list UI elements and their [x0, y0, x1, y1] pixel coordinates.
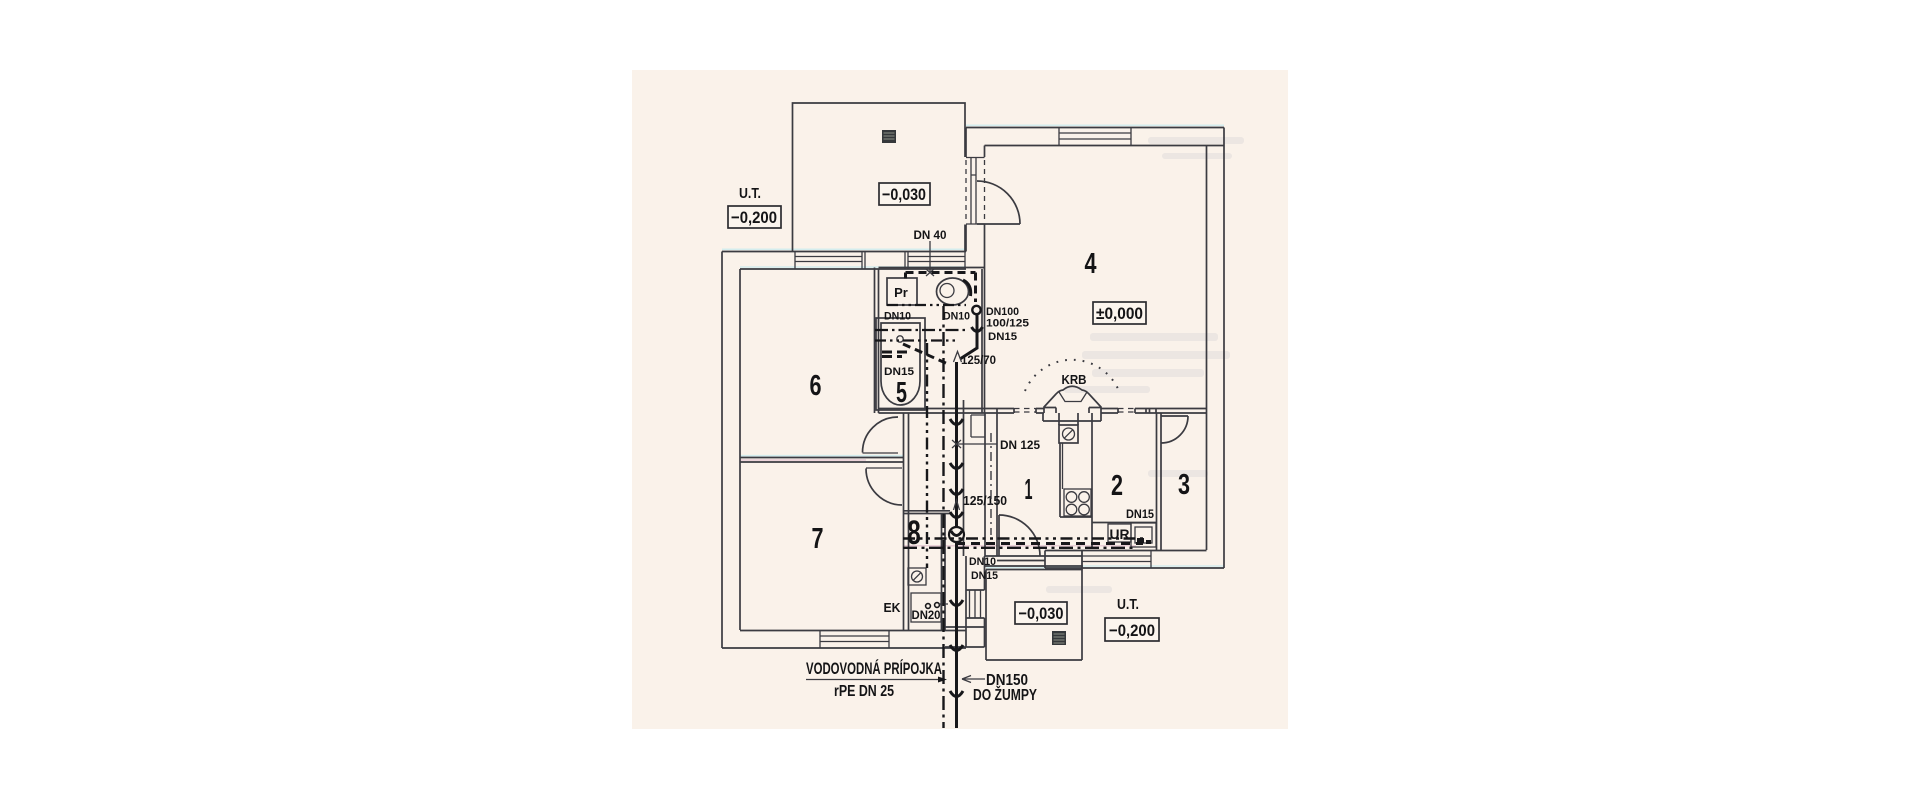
svg-text:DN15: DN15	[988, 331, 1017, 343]
svg-text:−0,030: −0,030	[1019, 604, 1064, 623]
svg-text:DN 125: DN 125	[1000, 438, 1040, 452]
svg-text:DN20: DN20	[912, 608, 941, 622]
svg-text:7: 7	[812, 523, 824, 555]
svg-text:DN10: DN10	[943, 311, 970, 323]
svg-text:DN15: DN15	[971, 570, 998, 582]
svg-text:3: 3	[1178, 469, 1190, 501]
svg-text:VODOVODNÁ PRÍPOJKA: VODOVODNÁ PRÍPOJKA	[806, 659, 942, 678]
svg-text:EK: EK	[884, 600, 902, 615]
svg-text:U.T.: U.T.	[739, 185, 761, 202]
svg-text:Pr: Pr	[894, 285, 908, 300]
svg-text:2: 2	[1111, 470, 1123, 502]
svg-text:5: 5	[896, 377, 907, 409]
svg-text:1: 1	[1025, 474, 1033, 506]
svg-text:−0,030: −0,030	[882, 185, 926, 204]
svg-text:8: 8	[907, 514, 921, 552]
svg-text:rPE DN 25: rPE DN 25	[834, 683, 894, 700]
svg-text:−0,200: −0,200	[731, 208, 777, 227]
svg-text:±0,000: ±0,000	[1096, 304, 1143, 323]
svg-text:125/70: 125/70	[961, 355, 996, 367]
svg-text:DN15: DN15	[1126, 507, 1154, 521]
svg-text:100/125: 100/125	[986, 318, 1029, 330]
svg-text:−0,200: −0,200	[1109, 621, 1155, 640]
svg-text:KRB: KRB	[1062, 373, 1087, 387]
svg-text:6: 6	[810, 370, 822, 402]
svg-text:4: 4	[1085, 248, 1097, 280]
svg-text:U.T.: U.T.	[1117, 596, 1139, 613]
svg-text:125/150: 125/150	[963, 494, 1007, 508]
svg-text:DN10: DN10	[884, 311, 911, 323]
svg-text:DN100: DN100	[986, 306, 1019, 318]
svg-text:DO ŽUMPY: DO ŽUMPY	[973, 685, 1037, 704]
svg-text:DN 40: DN 40	[914, 230, 947, 242]
svg-text:DN10: DN10	[969, 556, 996, 568]
